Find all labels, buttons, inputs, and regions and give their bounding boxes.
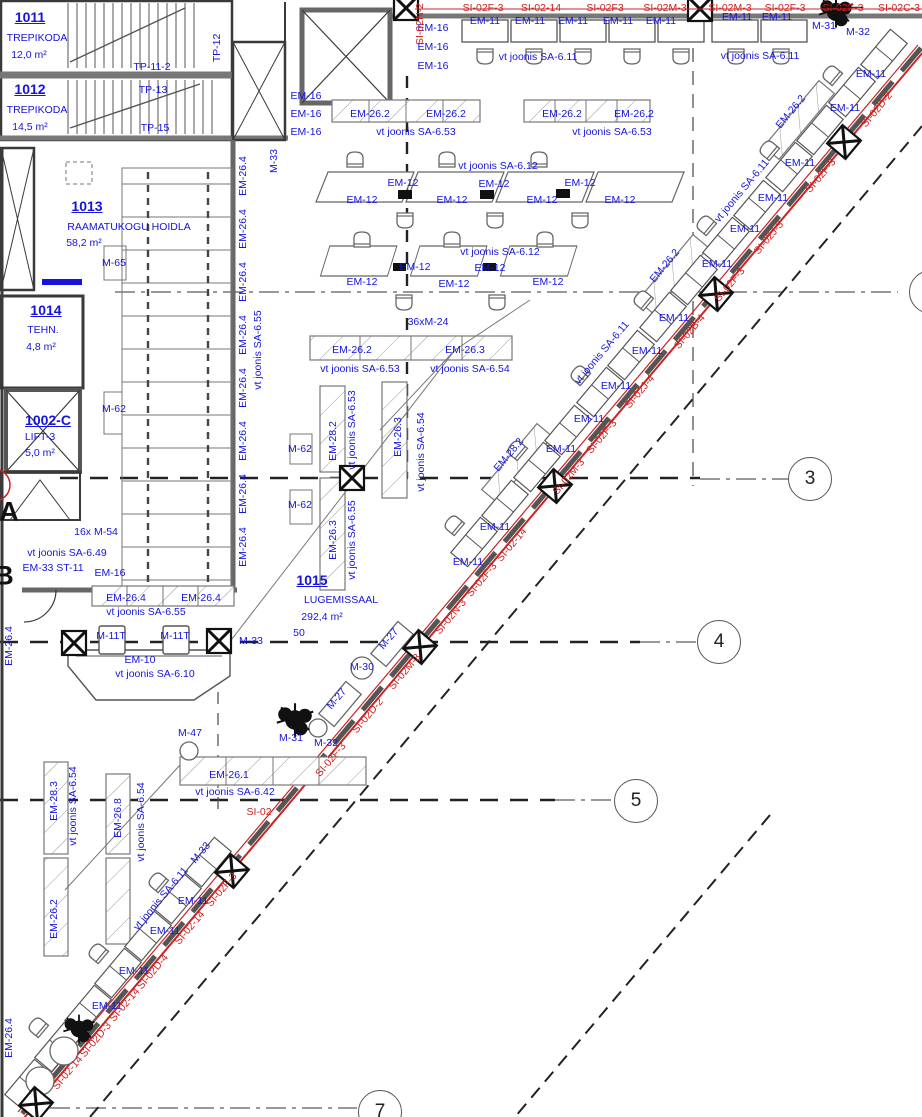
plan-label: EM-16 bbox=[291, 127, 322, 138]
plan-label: EM-26.8 bbox=[113, 798, 124, 838]
plan-label: EM-11 bbox=[702, 259, 732, 270]
room-name-1013: RAAMATUKOGU HOIDLA bbox=[67, 222, 191, 233]
plan-label: EM-11 bbox=[830, 103, 860, 114]
plan-label: vt joonis SA-6.11 bbox=[721, 51, 800, 62]
plan-label: EM-12 bbox=[347, 195, 378, 206]
plan-label: EM-28.3 bbox=[49, 781, 60, 821]
room-number-1015: 1015 bbox=[296, 573, 327, 587]
plan-label: M-11T bbox=[160, 631, 190, 642]
plan-label: EM-12 bbox=[388, 178, 419, 189]
plan-label: 292,4 m² bbox=[301, 612, 342, 623]
plan-label: TP-12 bbox=[212, 34, 223, 63]
room-number-1002c: 1002-C bbox=[25, 413, 71, 427]
plan-label: vt joonis SA-6.54 bbox=[430, 364, 509, 375]
room-name-1014: TEHN. bbox=[27, 325, 59, 336]
plan-label: EM-26.4 bbox=[238, 209, 249, 249]
grid-letter-A: A bbox=[0, 497, 19, 528]
plan-label: vt joonis SA-6.55 bbox=[106, 607, 185, 618]
plan-label: EM-26.3 bbox=[445, 345, 485, 356]
plan-label: EM-26.4 bbox=[238, 527, 249, 567]
plan-label: EM-11 bbox=[546, 444, 576, 455]
plan-label: vt joonis SA-6.12 bbox=[458, 161, 537, 172]
plan-label: EM-11 bbox=[632, 346, 662, 357]
plan-label: EM-16 bbox=[291, 109, 322, 120]
plan-label: SI-02M-3 bbox=[708, 3, 751, 14]
plan-label: EM-26.4 bbox=[106, 593, 146, 604]
plan-label: EM-11 bbox=[603, 16, 633, 27]
grid-letter-B: B bbox=[0, 561, 14, 592]
plan-label: EM-12 bbox=[347, 277, 378, 288]
plan-label: EM-26.4 bbox=[4, 626, 15, 666]
plan-label: vt joonis SA-6.53 bbox=[347, 390, 358, 469]
room-name-1015: LUGEMISSAAL bbox=[304, 595, 378, 606]
plan-label: EM-12 bbox=[527, 195, 558, 206]
plan-label: SI-02-14 bbox=[521, 3, 561, 14]
plan-label: 16x M-54 bbox=[74, 527, 118, 538]
grid-lines-vertical bbox=[218, 2, 693, 812]
room-number-1014: 1014 bbox=[30, 303, 61, 317]
plan-label: EM-12 bbox=[439, 279, 470, 290]
plan-label: EM-11 bbox=[515, 16, 545, 27]
plan-label: EM-26.4 bbox=[238, 262, 249, 302]
plan-label: EM-26.2 bbox=[332, 345, 372, 356]
plan-label: 5,0 m² bbox=[25, 448, 55, 459]
plan-label: M-62 bbox=[288, 444, 312, 455]
plan-label: EM-12 bbox=[533, 277, 564, 288]
plan-label: EM-26.2 bbox=[49, 899, 60, 939]
room-number-1013: 1013 bbox=[71, 199, 102, 213]
plan-label: 12,0 m² bbox=[11, 50, 47, 61]
plan-label: SI-02N-2 bbox=[415, 3, 426, 45]
plan-label: EM-10 bbox=[125, 655, 156, 666]
plan-label: vt joonis SA-6.53 bbox=[320, 364, 399, 375]
plan-label: EM-26.4 bbox=[181, 593, 221, 604]
plan-label: SI-02F3 bbox=[586, 3, 623, 14]
plan-label: M-31 bbox=[279, 733, 303, 744]
plan-label: TP-15 bbox=[141, 123, 170, 134]
plan-label: SI-02F-3 bbox=[765, 3, 806, 14]
plan-label: EM-26.4 bbox=[238, 315, 249, 355]
plan-label: SI-02 bbox=[246, 807, 271, 818]
plan-label: EM-11 bbox=[730, 224, 760, 235]
plan-label: EM-16 bbox=[418, 61, 449, 72]
plan-label: EM-11 bbox=[785, 158, 815, 169]
room-name-1011: TREPIKODA bbox=[7, 33, 68, 44]
plan-label: EM-12 bbox=[605, 195, 636, 206]
plan-label: vt joonis SA-6.53 bbox=[376, 127, 455, 138]
plan-label: EM-26.4 bbox=[238, 368, 249, 408]
plan-label: M-33 bbox=[239, 636, 263, 647]
plan-label: M-11T bbox=[96, 631, 126, 642]
grid-bubble-5: 5 bbox=[614, 779, 658, 823]
plan-label: EM-11 bbox=[758, 193, 788, 204]
plan-label: EM-11 bbox=[659, 313, 689, 324]
plan-label: EM-26.2 bbox=[614, 109, 654, 120]
room-number-1012: 1012 bbox=[14, 82, 45, 96]
plan-label: EM-26.2 bbox=[542, 109, 582, 120]
plan-label: vt joonis SA-6.55 bbox=[347, 500, 358, 579]
grid-bubble-3: 3 bbox=[788, 457, 832, 501]
floor-plan: 1011TREPIKODA12,0 m²1012TREPIKODA14,5 m²… bbox=[0, 0, 922, 1117]
room-name-1012: TREPIKODA bbox=[7, 105, 68, 116]
plan-label: vt joonis SA-6.42 bbox=[195, 787, 274, 798]
plan-label: M-30 bbox=[350, 662, 374, 673]
plan-label: EM-11 bbox=[601, 381, 631, 392]
plan-label: EM-16 bbox=[95, 568, 126, 579]
plan-label: SI-02F-3 bbox=[823, 3, 864, 14]
plan-label: EM-28.2 bbox=[328, 421, 339, 461]
plan-label: 36xM-24 bbox=[408, 317, 449, 328]
plan-label: EM-12 bbox=[565, 178, 596, 189]
plan-label: M-33 bbox=[269, 149, 280, 173]
plan-label: M-32 bbox=[846, 27, 870, 38]
plan-label: 50 bbox=[293, 628, 305, 639]
plan-label: EM-12 bbox=[475, 263, 506, 274]
plan-label: vt joonis SA-6.55 bbox=[253, 310, 264, 389]
plan-label: TP-11-2 bbox=[133, 62, 170, 73]
room-number-1011: 1011 bbox=[15, 10, 45, 24]
plan-label: SI-02C-3 bbox=[878, 3, 920, 14]
plan-label: vt joonis SA-6.49 bbox=[27, 548, 106, 559]
plan-label: vt joonis SA-6.54 bbox=[136, 782, 147, 861]
plan-label: 14,5 m² bbox=[12, 122, 48, 133]
plan-label: EM-11 bbox=[646, 16, 676, 27]
plan-label: SI-02M-3 bbox=[643, 3, 686, 14]
plan-label: M-62 bbox=[288, 500, 312, 511]
plan-label: EM-11 bbox=[470, 16, 500, 27]
plan-label: EM-16 bbox=[291, 91, 322, 102]
plan-label: SI-02F-3 bbox=[463, 3, 504, 14]
plan-label: TP-13 bbox=[139, 85, 168, 96]
plan-label: 58,2 m² bbox=[66, 238, 102, 249]
plan-label: EM-26.2 bbox=[426, 109, 466, 120]
plan-label: vt joonis SA-6.12 bbox=[460, 247, 539, 258]
plan-label: vt joonis SA-6.54 bbox=[416, 412, 427, 491]
blue-door-mark bbox=[42, 279, 82, 285]
facade-diagonal bbox=[18, 45, 922, 1117]
plan-label: EM-11 bbox=[856, 69, 886, 80]
plan-label: EM-26.4 bbox=[4, 1018, 15, 1058]
plan-label: M-31 bbox=[812, 21, 836, 32]
plan-label: EM-26.4 bbox=[238, 474, 249, 514]
plan-label: vt joonis SA-6.54 bbox=[68, 766, 79, 845]
plan-label: EM-26.1 bbox=[209, 770, 249, 781]
plan-label: vt joonis SA-6.11 bbox=[499, 52, 578, 63]
plan-label: EM-26.3 bbox=[328, 520, 339, 560]
plan-label: EM-26.2 bbox=[350, 109, 390, 120]
plan-label: M-65 bbox=[102, 258, 126, 269]
plan-label: 4,8 m² bbox=[26, 342, 56, 353]
plan-label: EM-26.4 bbox=[238, 156, 249, 196]
plan-label: M-47 bbox=[178, 728, 202, 739]
grid-bubble-4: 4 bbox=[697, 620, 741, 664]
plan-label: M-62 bbox=[102, 404, 126, 415]
plan-label: EM-33 ST-11 bbox=[22, 563, 83, 574]
plan-label: EM-11 bbox=[480, 522, 510, 533]
plan-label: EM-11 bbox=[453, 557, 483, 568]
plan-label: EM-26.3 bbox=[393, 417, 404, 457]
plan-label: EM-26.4 bbox=[238, 421, 249, 461]
plan-label: EM-12 bbox=[400, 262, 431, 273]
plan-label: EM-11 bbox=[558, 16, 588, 27]
plan-label: vt joonis SA-6.53 bbox=[572, 127, 651, 138]
plan-label: EM-12 bbox=[479, 179, 510, 190]
plan-label: EM-12 bbox=[437, 195, 468, 206]
room-name-1002c: LIFT-3 bbox=[25, 432, 55, 443]
plan-label: EM-11 bbox=[574, 414, 604, 425]
plan-label: vt joonis SA-6.10 bbox=[115, 669, 194, 680]
